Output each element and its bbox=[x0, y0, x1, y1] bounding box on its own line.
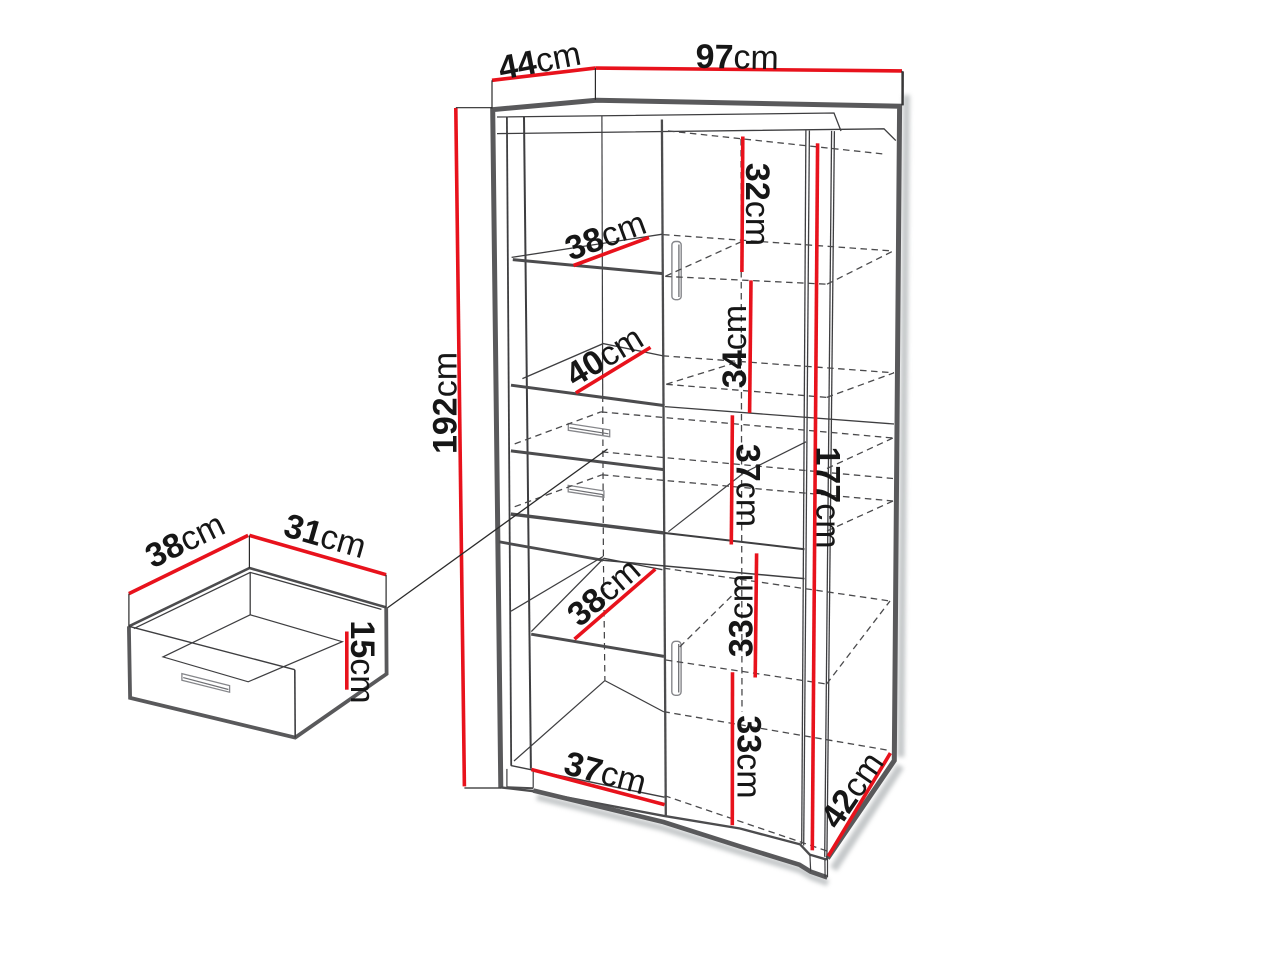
svg-text:32cm: 32cm bbox=[738, 163, 776, 246]
svg-text:33cm: 33cm bbox=[723, 574, 761, 657]
svg-text:177cm: 177cm bbox=[809, 446, 847, 548]
svg-text:37cm: 37cm bbox=[729, 444, 767, 527]
svg-text:97cm: 97cm bbox=[695, 38, 779, 77]
svg-text:33cm: 33cm bbox=[729, 715, 767, 798]
svg-text:192cm: 192cm bbox=[427, 352, 465, 454]
svg-text:15cm: 15cm bbox=[343, 620, 381, 703]
svg-text:34cm: 34cm bbox=[716, 305, 754, 388]
